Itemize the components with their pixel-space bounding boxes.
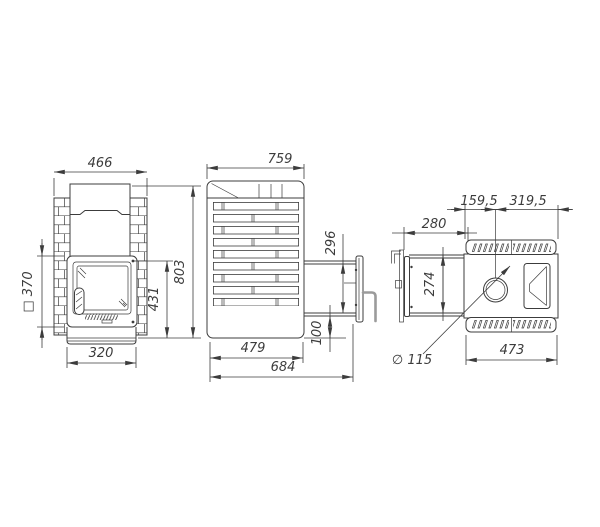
side-top-band [207,184,304,199]
dim-overall-depth: 759 [207,152,304,179]
tunnel-door-handle [363,293,376,322]
dim-label-door-square: □ 370 [21,271,36,312]
dim-overall-width: 466 [54,156,147,196]
front-top-cap [70,184,130,256]
dim-label-overall-depth: 759 [268,152,293,167]
top-view [392,210,559,333]
dim-bottom-offset: 100 [304,305,346,352]
screw-dot [355,269,357,271]
side-view [207,181,376,338]
dim-label-bottom-offset: 100 [310,321,325,346]
dim-label-front-width: 466 [88,156,113,171]
dim-label-overall-height: 803 [173,260,188,285]
dim-label-body-depth: 479 [241,341,266,356]
door-handle [75,288,85,315]
firebox-tunnel [304,256,376,322]
firebox-door [67,256,137,327]
front-base [67,327,136,344]
stone-funnel [524,264,550,309]
dim-label-total-depth: 684 [271,360,296,375]
door-corner-dot [132,260,135,263]
dim-label-door-height: 431 [147,287,162,312]
dim-top-body-width: 473 [466,335,557,365]
dim-base-width: 320 [67,346,136,368]
chimney-outlet [484,210,508,303]
top-vent-strip-back [466,318,556,333]
lid-contour [70,211,130,215]
dim-label-top-body-width: 473 [500,343,525,358]
top-dimensions: 159,5 319,5 280 274 473 ∅ 115 [392,194,573,368]
tunnel-door-plate [356,256,363,322]
screw-dot [410,306,412,308]
dim-tunnel-length: 280 [392,217,477,250]
dim-tunnel-opening: 296 [324,231,343,313]
screw-dot [355,304,357,306]
front-view [54,184,147,344]
top-tunnel-door-plate [405,257,410,317]
latch [396,281,402,289]
dim-label-chimney-offset-back: 319,5 [509,194,546,209]
dim-label-chimney-diameter: ∅ 115 [392,353,432,368]
chamfer-line [212,184,239,199]
stove-drawing-canvas: 466 □ 370 431 803 320 [0,0,600,527]
dim-label-tunnel-width: 274 [423,272,438,297]
dim-label-tunnel-opening: 296 [324,231,339,256]
dim-label-tunnel-length: 280 [422,217,447,232]
top-vent-strip-front [466,240,556,255]
dim-chimney-offsets: 159,5 319,5 [447,194,573,239]
dim-label-base-width: 320 [89,346,114,361]
door-vent-grille [85,314,118,321]
screw-dot [410,266,412,268]
door-corner-dot [132,321,135,324]
convection-fins [213,202,299,306]
dim-label-chimney-offset-front: 159,5 [460,194,497,209]
dim-total-depth: 684 [210,324,353,382]
technical-drawing-page: 466 □ 370 431 803 320 [0,0,600,527]
